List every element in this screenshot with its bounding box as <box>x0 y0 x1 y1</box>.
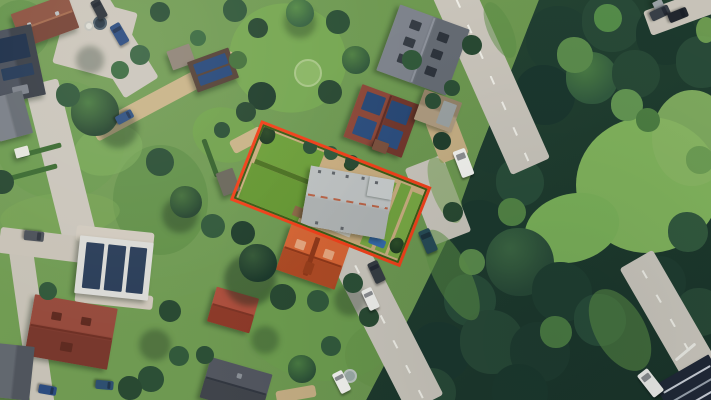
windshield <box>455 152 466 161</box>
car-layer <box>0 0 711 400</box>
windshield <box>112 25 121 33</box>
car-dark-southwest <box>24 230 45 242</box>
car-blue-driveway <box>114 109 134 125</box>
windshield <box>36 233 41 241</box>
windshield <box>125 111 131 119</box>
windshield <box>679 9 686 18</box>
car-dark-main-road <box>366 260 385 285</box>
windshield <box>369 263 378 271</box>
windshield <box>49 387 54 394</box>
van-white-southeast <box>636 368 663 398</box>
car-white-main-road-2 <box>331 370 351 395</box>
aerial-photo <box>0 0 711 400</box>
car-blue-southwest <box>37 384 56 396</box>
windshield <box>334 373 343 381</box>
windshield <box>421 232 431 240</box>
windshield <box>640 372 651 383</box>
windshield <box>92 1 101 8</box>
windshield <box>363 290 372 298</box>
car-teal-main-road <box>418 228 438 255</box>
car-white-main-road <box>360 287 379 312</box>
car-blue-northwest <box>109 22 130 47</box>
van-white-main-road <box>452 148 474 179</box>
car-blue-south <box>95 380 114 391</box>
van-dark-northwest <box>90 0 108 20</box>
windshield <box>106 382 110 389</box>
car-dark-northeast-2 <box>667 7 689 24</box>
